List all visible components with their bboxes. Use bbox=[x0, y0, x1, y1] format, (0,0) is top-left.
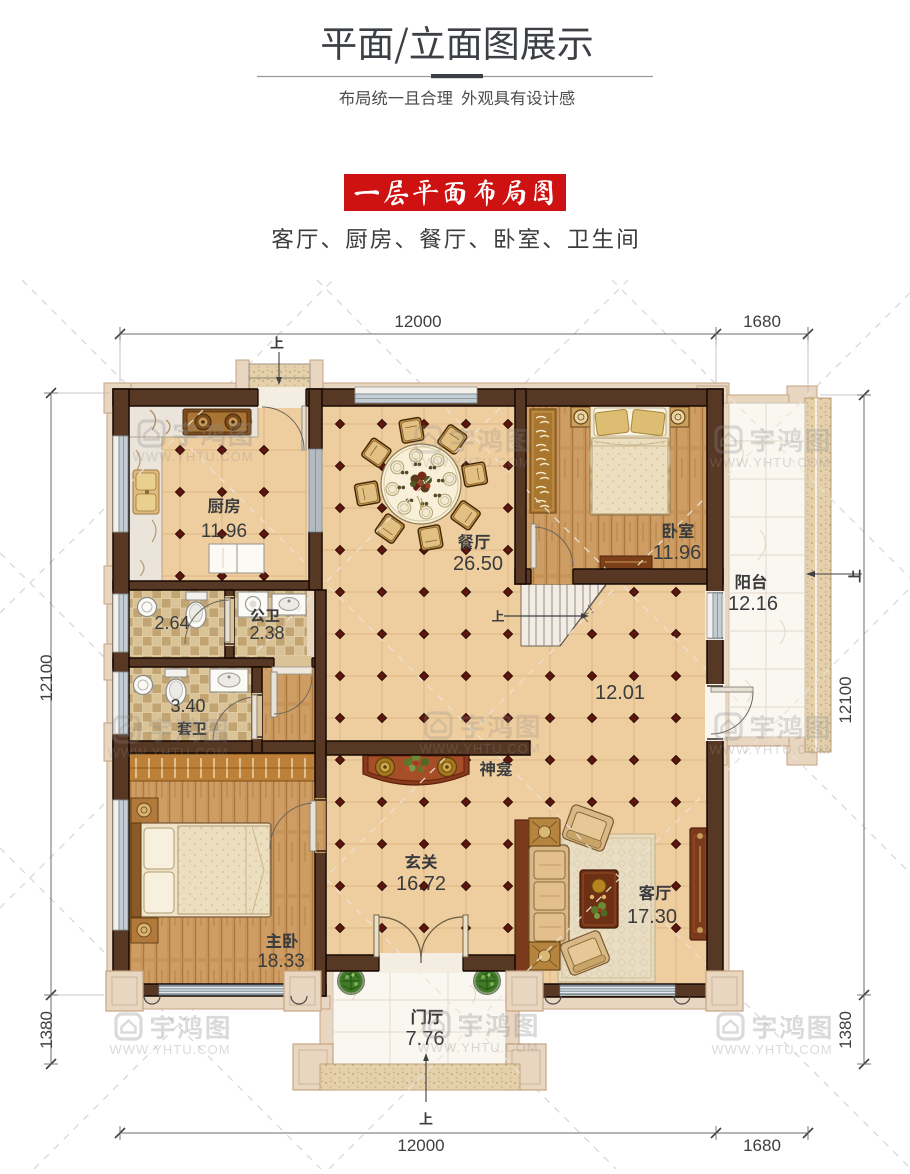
svg-text:3.40: 3.40 bbox=[170, 696, 205, 716]
svg-text:2.64: 2.64 bbox=[154, 613, 189, 633]
svg-text:12.01: 12.01 bbox=[595, 682, 645, 704]
svg-text:18.33: 18.33 bbox=[257, 951, 305, 972]
svg-text:2.38: 2.38 bbox=[249, 623, 284, 643]
svg-text:11.96: 11.96 bbox=[653, 542, 702, 564]
svg-text:26.50: 26.50 bbox=[453, 553, 503, 575]
svg-text:12100: 12100 bbox=[37, 654, 56, 701]
svg-text:12100: 12100 bbox=[836, 676, 855, 723]
svg-text:12000: 12000 bbox=[394, 312, 441, 331]
svg-text:1680: 1680 bbox=[743, 312, 781, 331]
svg-text:17.30: 17.30 bbox=[627, 906, 677, 928]
svg-text:12.16: 12.16 bbox=[728, 593, 778, 615]
svg-text:1680: 1680 bbox=[743, 1136, 781, 1155]
svg-text:1380: 1380 bbox=[37, 1011, 56, 1049]
svg-text:11.96: 11.96 bbox=[201, 521, 247, 542]
svg-text:12000: 12000 bbox=[397, 1136, 444, 1155]
svg-text:16.72: 16.72 bbox=[396, 873, 446, 895]
svg-text:1380: 1380 bbox=[836, 1011, 855, 1049]
